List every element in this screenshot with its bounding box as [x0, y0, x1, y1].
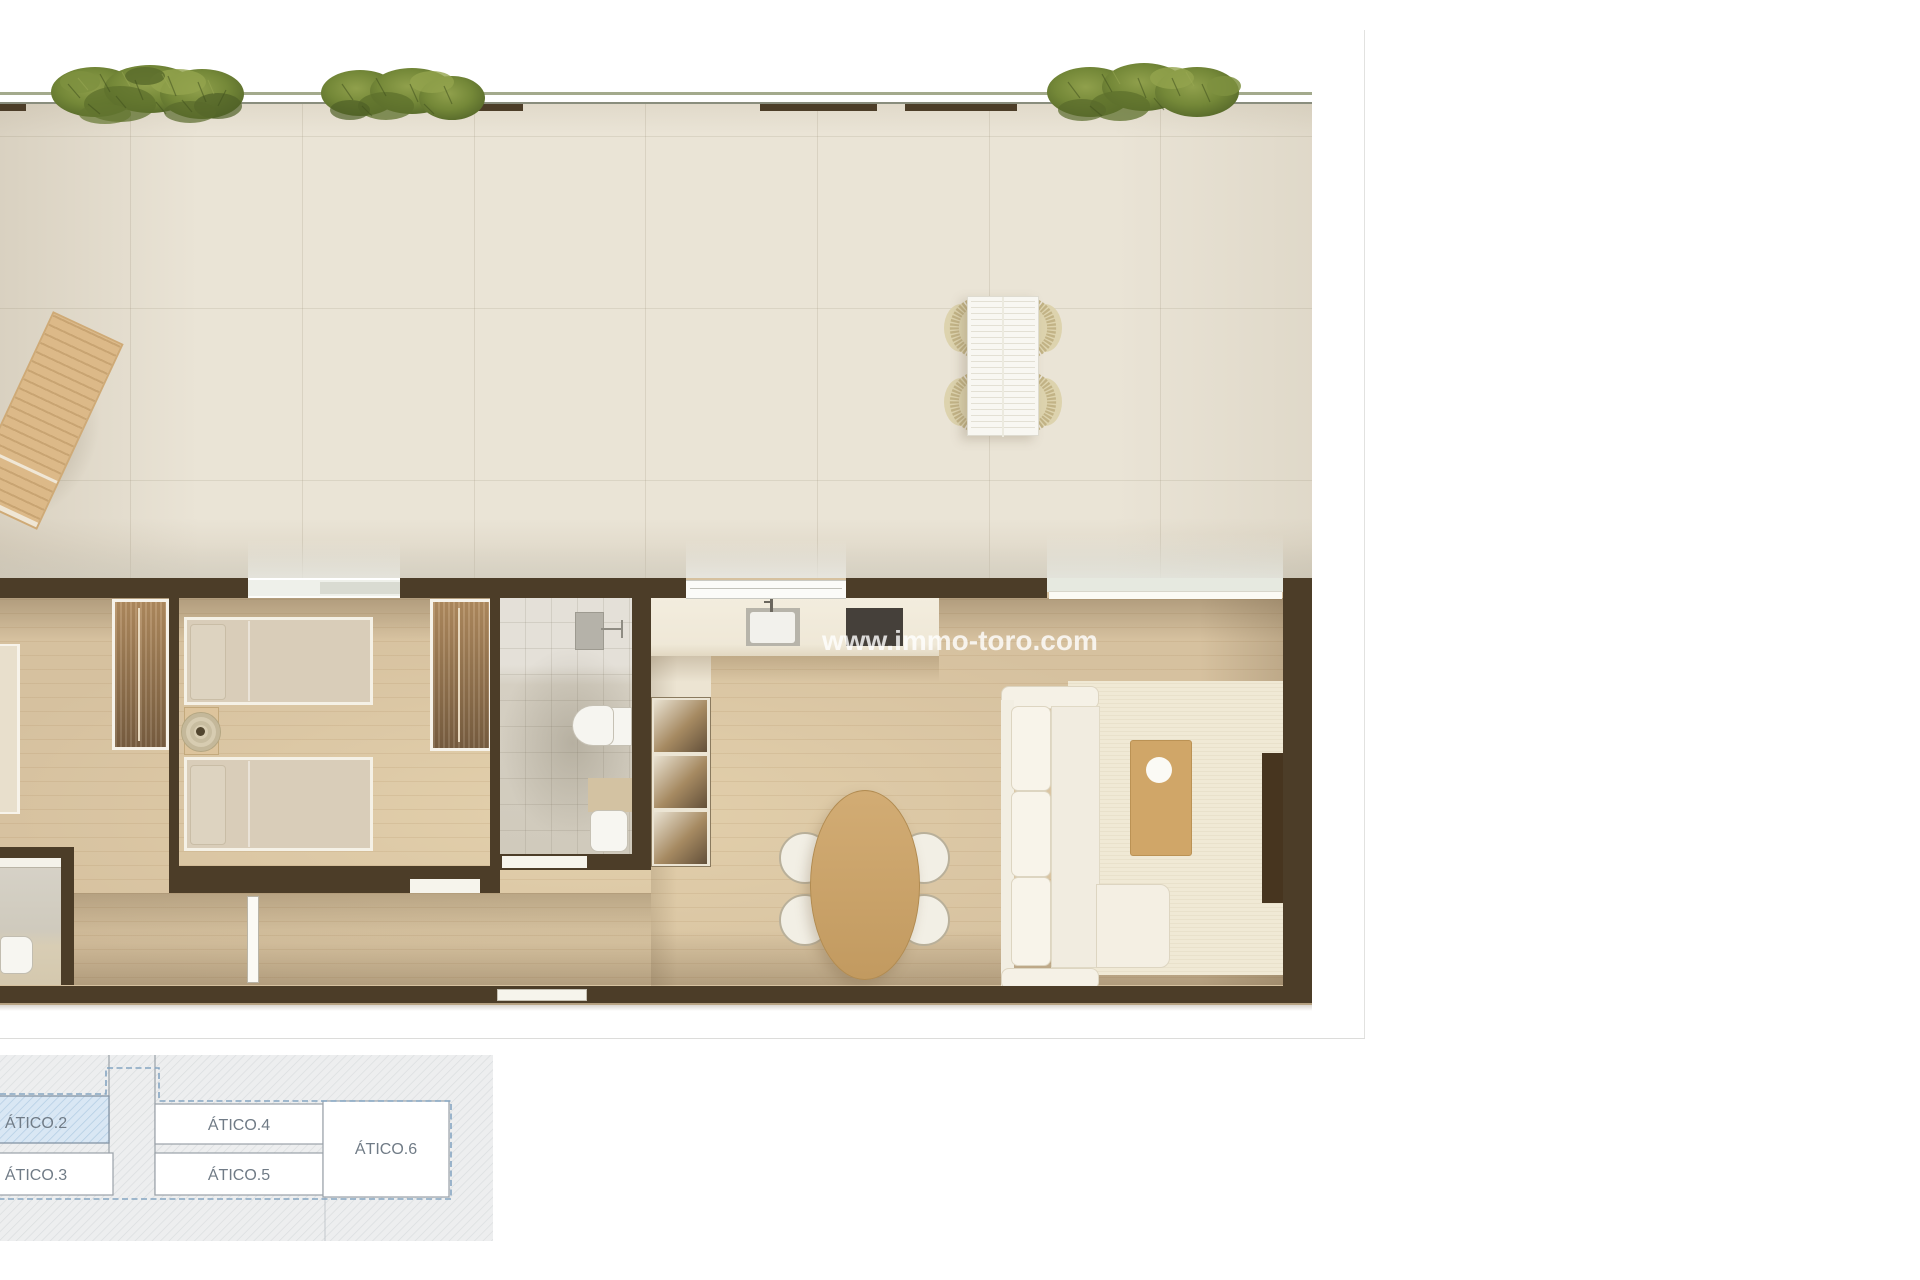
- svg-text:ÁTICO.3: ÁTICO.3: [5, 1165, 67, 1184]
- svg-text:ÁTICO.2: ÁTICO.2: [5, 1113, 67, 1132]
- svg-text:ÁTICO.4: ÁTICO.4: [208, 1115, 270, 1134]
- svg-text:ÁTICO.6: ÁTICO.6: [355, 1139, 417, 1158]
- svg-text:ÁTICO.5: ÁTICO.5: [208, 1165, 270, 1184]
